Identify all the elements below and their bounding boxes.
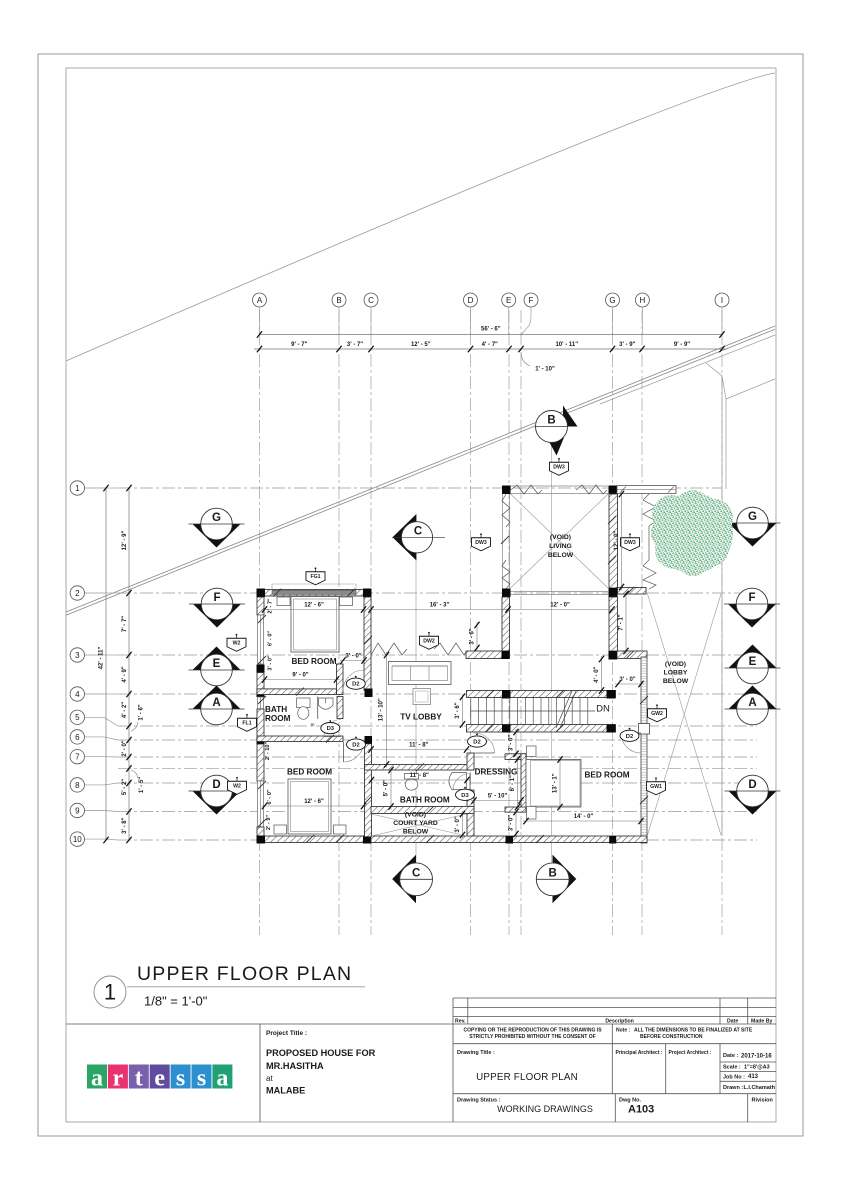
svg-text:Scale :: Scale : — [723, 1065, 741, 1071]
svg-text:A: A — [257, 296, 263, 305]
svg-text:L.I.Chamath: L.I.Chamath — [744, 1085, 776, 1091]
svg-text:6: 6 — [75, 733, 80, 742]
svg-text:1"=8'@A3: 1"=8'@A3 — [744, 1065, 770, 1071]
svg-text:13' - 10": 13' - 10" — [379, 698, 385, 721]
svg-text:FL1: FL1 — [242, 721, 251, 727]
svg-text:MR.HASITHA: MR.HASITHA — [266, 1061, 324, 1071]
svg-text:(VOID): (VOID) — [550, 534, 571, 541]
svg-text:1/8" = 1'-0": 1/8" = 1'-0" — [144, 994, 208, 1009]
svg-text:A103: A103 — [628, 1104, 654, 1116]
svg-text:BELOW: BELOW — [548, 552, 574, 559]
svg-text:4: 4 — [75, 690, 80, 699]
svg-text:a: a — [216, 1066, 228, 1092]
svg-text:12' - 6": 12' - 6" — [304, 603, 324, 609]
svg-text:2: 2 — [75, 589, 80, 598]
svg-text:G: G — [212, 512, 221, 524]
svg-text:BELOW: BELOW — [663, 678, 689, 685]
svg-text:I: I — [721, 296, 723, 305]
svg-text:3' - 0": 3' - 0" — [619, 677, 635, 683]
svg-text:D2: D2 — [352, 743, 359, 749]
svg-text:COPYING OR THE REPRODUCTION OF: COPYING OR THE REPRODUCTION OF THIS DRAW… — [463, 1028, 602, 1034]
svg-text:C: C — [368, 296, 374, 305]
svg-text:B: B — [336, 296, 341, 305]
svg-text:LOBBY: LOBBY — [664, 670, 688, 677]
svg-text:3' - 7": 3' - 7" — [347, 342, 363, 348]
svg-text:BATH ROOM: BATH ROOM — [400, 795, 450, 804]
svg-text:s: s — [176, 1066, 185, 1092]
svg-text:B: B — [549, 867, 557, 879]
svg-text:F: F — [529, 296, 534, 305]
svg-text:1' - 10": 1' - 10" — [535, 367, 555, 373]
svg-text:Drawing Title :: Drawing Title : — [457, 1050, 495, 1056]
svg-text:F: F — [748, 592, 755, 604]
svg-text:Date: Date — [727, 1018, 738, 1024]
svg-text:Made By: Made By — [751, 1018, 772, 1024]
svg-text:5' - 10": 5' - 10" — [488, 794, 508, 800]
svg-text:PROPOSED HOUSE FOR: PROPOSED HOUSE FOR — [266, 1048, 376, 1058]
svg-text:5' - 0": 5' - 0" — [384, 780, 390, 796]
svg-text:D3: D3 — [327, 726, 335, 732]
svg-text:4' - 2": 4' - 2" — [122, 702, 128, 718]
svg-text:W2: W2 — [233, 641, 241, 647]
svg-text:BATH: BATH — [265, 705, 287, 714]
svg-text:3: 3 — [75, 651, 80, 660]
svg-text:r: r — [113, 1066, 124, 1092]
svg-text:BED ROOM: BED ROOM — [584, 771, 629, 780]
svg-text:12' - 9": 12' - 9" — [122, 531, 128, 551]
svg-text:1: 1 — [104, 980, 116, 1005]
svg-text:D: D — [468, 296, 474, 305]
svg-text:ROOM: ROOM — [265, 714, 291, 723]
svg-text:6' - 0": 6' - 0" — [267, 789, 273, 805]
svg-text:C: C — [414, 525, 422, 537]
svg-text:5' - 2": 5' - 2" — [122, 779, 128, 795]
svg-text:A: A — [748, 697, 756, 709]
svg-text:Project Architect :: Project Architect : — [669, 1050, 712, 1056]
svg-text:11' - 8": 11' - 8" — [410, 773, 429, 779]
svg-text:2' - 0": 2' - 0" — [122, 740, 128, 756]
svg-text:GW1: GW1 — [650, 784, 662, 790]
svg-text:9' - 7": 9' - 7" — [291, 342, 307, 348]
svg-text:BELOW: BELOW — [403, 829, 429, 836]
svg-text:3' - 0": 3' - 0" — [455, 816, 461, 832]
svg-text:10' - 11": 10' - 11" — [555, 342, 578, 348]
svg-text:12' - 5": 12' - 5" — [411, 342, 431, 348]
svg-text:Job No :: Job No : — [723, 1075, 745, 1081]
svg-text:12' - 0": 12' - 0" — [550, 603, 570, 609]
svg-text:DN: DN — [596, 704, 610, 715]
svg-text:D: D — [212, 779, 220, 791]
svg-text:13' - 1": 13' - 1" — [553, 773, 559, 793]
svg-text:2017-10-16: 2017-10-16 — [741, 1054, 772, 1060]
svg-text:5: 5 — [75, 713, 80, 722]
svg-text:GW2: GW2 — [651, 711, 663, 717]
svg-text:In: In — [310, 722, 314, 728]
svg-text:D2: D2 — [473, 740, 480, 746]
svg-text:MALABE: MALABE — [266, 1086, 305, 1096]
svg-text:3' - 0": 3' - 0" — [345, 654, 361, 660]
svg-text:2' - 10": 2' - 10" — [265, 742, 271, 761]
svg-text:Principal Architect :: Principal Architect : — [616, 1050, 663, 1056]
svg-text:14' - 0": 14' - 0" — [574, 814, 594, 820]
svg-text:G: G — [609, 296, 615, 305]
svg-text:BED ROOM: BED ROOM — [291, 657, 336, 666]
svg-text:56' - 6": 56' - 6" — [481, 327, 501, 333]
svg-text:8: 8 — [75, 781, 80, 790]
svg-text:3' - 9": 3' - 9" — [619, 342, 635, 348]
svg-text:G: G — [748, 511, 757, 523]
svg-text:BED ROOM: BED ROOM — [287, 768, 332, 777]
svg-text:6' - 0": 6' - 0" — [268, 631, 274, 647]
svg-text:16' - 3": 16' - 3" — [430, 603, 450, 609]
svg-text:413: 413 — [748, 1074, 759, 1080]
svg-text:FG1: FG1 — [310, 574, 320, 580]
svg-text:6' - 1": 6' - 1" — [510, 775, 516, 791]
svg-text:11' - 8": 11' - 8" — [409, 743, 428, 749]
svg-text:D3: D3 — [461, 793, 469, 799]
svg-text:E: E — [506, 296, 511, 305]
svg-text:Date :: Date : — [723, 1053, 738, 1059]
svg-text:4' - 9": 4' - 9" — [122, 666, 128, 682]
svg-text:9: 9 — [75, 806, 80, 815]
svg-text:a: a — [91, 1066, 103, 1092]
svg-text:Rev.: Rev. — [455, 1018, 466, 1024]
svg-text:7: 7 — [75, 753, 80, 762]
svg-text:3' - 6": 3' - 6" — [470, 628, 476, 644]
svg-text:12' - 6": 12' - 6" — [304, 799, 324, 805]
svg-text:BEFORE CONSTRUCTION: BEFORE CONSTRUCTION — [640, 1034, 703, 1040]
svg-text:D: D — [748, 779, 756, 791]
svg-text:2' - 9": 2' - 9" — [266, 815, 272, 831]
svg-text:s: s — [197, 1066, 206, 1092]
svg-text:E: E — [749, 656, 757, 668]
svg-text:DW3: DW3 — [553, 465, 565, 471]
svg-text:1: 1 — [75, 484, 80, 493]
svg-text:DW3: DW3 — [624, 540, 636, 546]
svg-text:DW3: DW3 — [475, 540, 487, 546]
svg-text:3' - 0": 3' - 0" — [509, 815, 515, 831]
svg-text:LIVING: LIVING — [549, 543, 572, 550]
svg-text:42' - 11": 42' - 11" — [99, 647, 105, 670]
svg-text:2' - 7": 2' - 7" — [268, 598, 274, 614]
svg-text:Note :: Note : — [616, 1028, 631, 1034]
svg-text:4' - 0": 4' - 0" — [594, 666, 600, 682]
svg-text:D2: D2 — [352, 682, 359, 688]
svg-text:1' - 5": 1' - 5" — [139, 777, 145, 793]
svg-text:9' - 0": 9' - 0" — [292, 673, 308, 679]
svg-text:3' - 8": 3' - 8" — [122, 817, 128, 833]
svg-text:H: H — [640, 296, 646, 305]
svg-text:WORKING DRAWINGS: WORKING DRAWINGS — [497, 1104, 593, 1114]
svg-text:at: at — [266, 1074, 273, 1083]
svg-text:Drawn :: Drawn : — [723, 1085, 743, 1091]
svg-text:UPPER FLOOR PLAN: UPPER FLOOR PLAN — [476, 1072, 578, 1083]
svg-text:7' - 7": 7' - 7" — [122, 616, 128, 632]
svg-text:Project Title :: Project Title : — [266, 1030, 307, 1037]
svg-text:F: F — [213, 592, 220, 604]
svg-text:10: 10 — [73, 835, 82, 844]
svg-text:t: t — [135, 1066, 143, 1092]
svg-text:4' - 7": 4' - 7" — [482, 342, 498, 348]
svg-text:3' - 6": 3' - 6" — [455, 702, 461, 718]
svg-text:e: e — [154, 1066, 165, 1092]
svg-text:UPPER FLOOR PLAN: UPPER FLOOR PLAN — [137, 963, 352, 985]
svg-text:D2: D2 — [626, 734, 633, 740]
svg-text:C: C — [412, 867, 420, 879]
svg-text:W2: W2 — [233, 784, 241, 790]
svg-text:3' - 0": 3' - 0" — [268, 655, 274, 671]
svg-text:E: E — [213, 658, 221, 670]
svg-text:7' - 1": 7' - 1" — [619, 614, 625, 630]
svg-text:12' - 0": 12' - 0" — [614, 531, 620, 551]
svg-text:DW2: DW2 — [423, 639, 435, 645]
svg-text:3' - 0": 3' - 0" — [509, 735, 515, 751]
svg-text:(VOID): (VOID) — [405, 812, 426, 819]
svg-text:TV LOBBY: TV LOBBY — [400, 713, 442, 722]
svg-text:STRICTLY PROHIBITED WITHOUT TH: STRICTLY PROHIBITED WITHOUT THE CONSENT … — [469, 1034, 595, 1040]
svg-text:9' - 9": 9' - 9" — [674, 342, 690, 348]
svg-text:Rivision: Rivision — [752, 1098, 774, 1104]
svg-text:1' - 6": 1' - 6" — [139, 704, 145, 720]
svg-text:Description: Description — [605, 1018, 634, 1024]
svg-text:(VOID): (VOID) — [665, 661, 686, 668]
svg-text:Drawing Status :: Drawing Status : — [457, 1098, 501, 1104]
svg-text:ALL THE DIMENSIONS TO BE FINAL: ALL THE DIMENSIONS TO BE FINALIZED AT SI… — [634, 1028, 753, 1034]
svg-text:B: B — [547, 415, 555, 427]
svg-text:A: A — [212, 697, 220, 709]
svg-text:COURT YARD: COURT YARD — [393, 820, 438, 827]
